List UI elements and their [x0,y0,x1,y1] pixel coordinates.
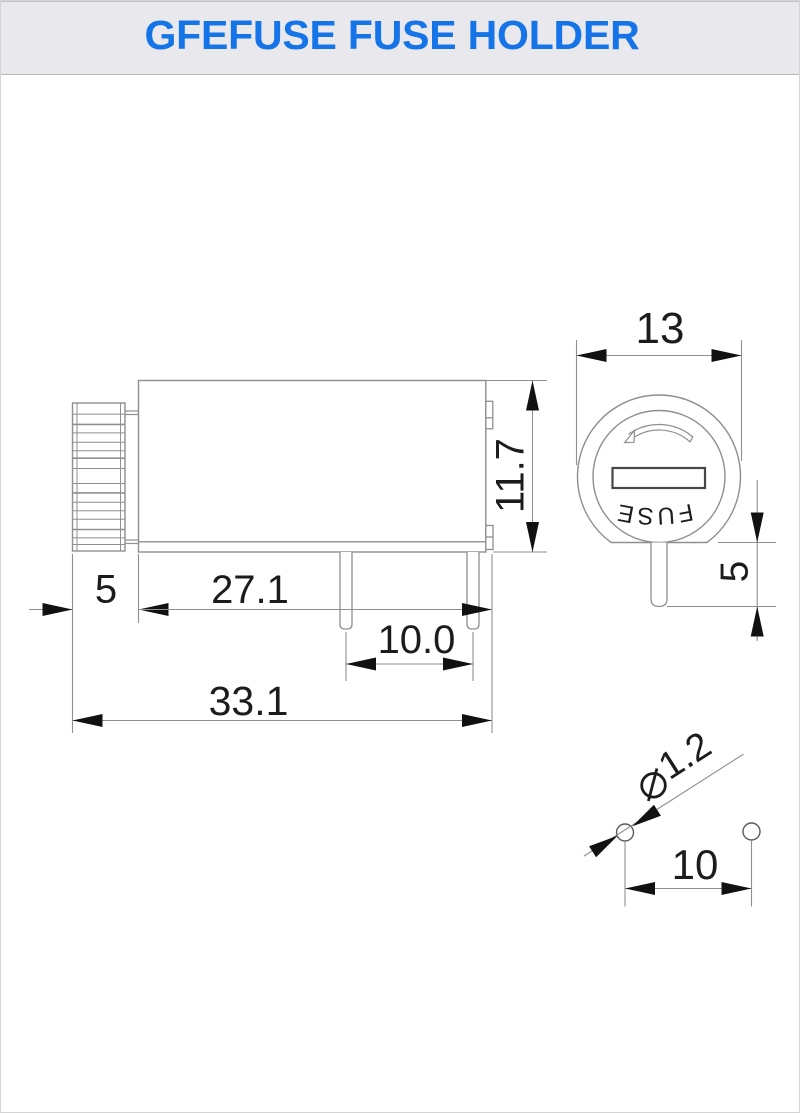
svg-text:33.1: 33.1 [209,678,289,724]
svg-text:11.7: 11.7 [489,438,533,513]
svg-text:13: 13 [636,304,685,353]
svg-text:10: 10 [672,841,719,888]
svg-text:10.0: 10.0 [378,618,456,662]
svg-text:5: 5 [95,568,117,612]
svg-text:27.1: 27.1 [211,568,289,612]
svg-text:5: 5 [714,561,757,583]
